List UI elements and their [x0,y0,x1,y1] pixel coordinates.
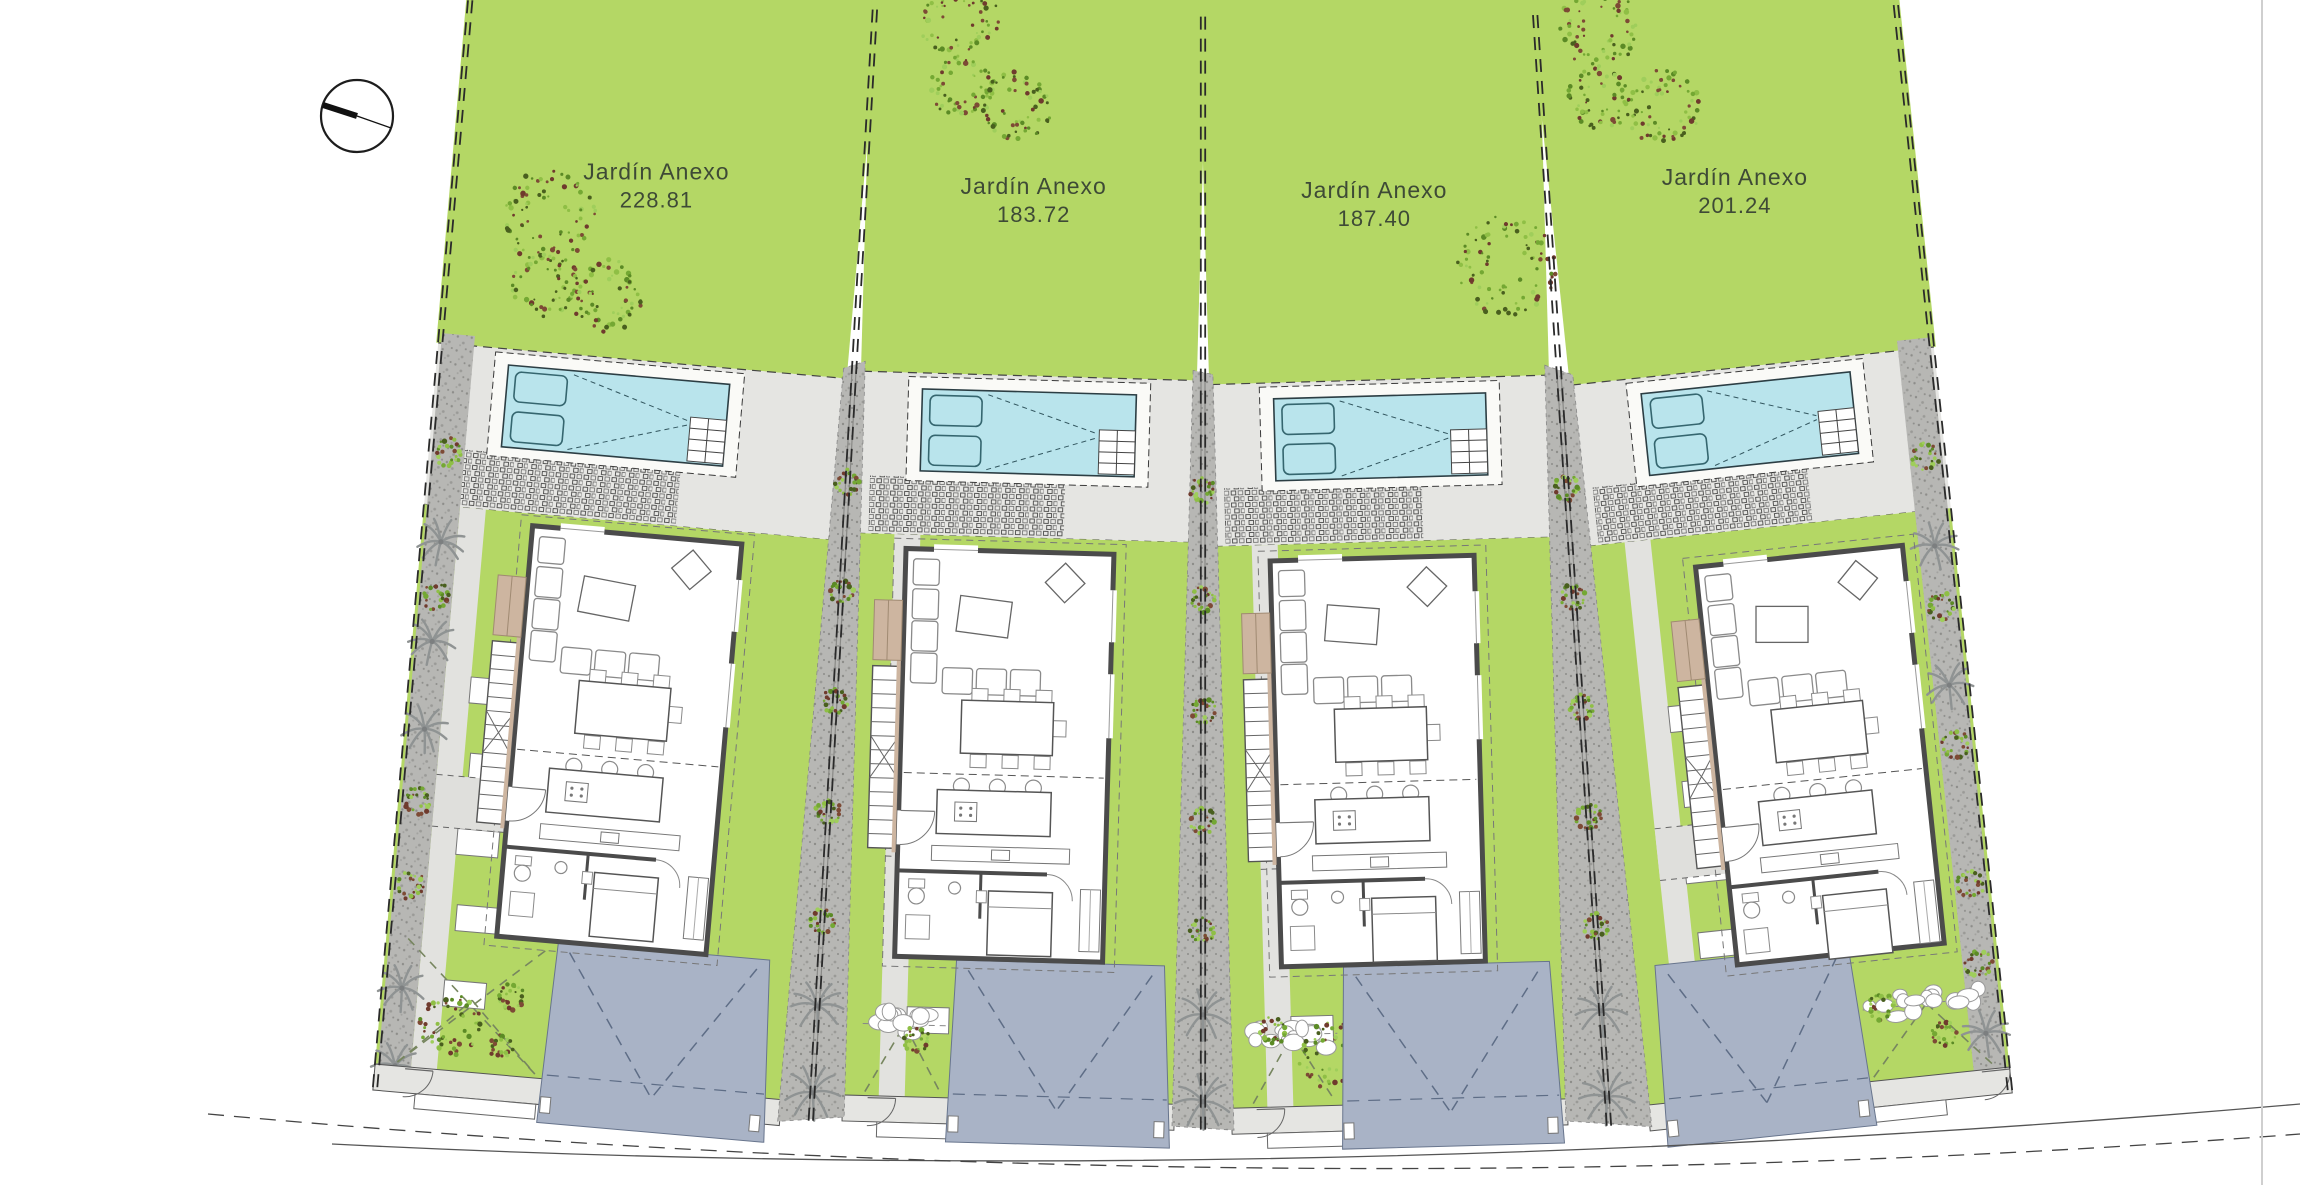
pool-steps [1818,408,1858,456]
site-plan-sheet: Jardín Anexo228.81Jardín Anexo183.72Jard… [0,0,2304,1185]
dining-set [1334,694,1441,776]
garden-area-value: 201.24 [1698,193,1771,218]
site-plan-drawing: Jardín Anexo228.81Jardín Anexo183.72Jard… [0,0,2304,1185]
garden-area-value: 183.72 [997,202,1070,227]
plot-3: Jardín Anexo187.40 [1197,0,1582,1152]
driveway [945,960,1174,1148]
house-floorplan [882,538,1126,972]
driveway [1649,944,1877,1147]
pool [1259,381,1502,492]
driveway [537,941,780,1142]
pool-steps [1098,430,1135,475]
garden-area-value: 228.81 [620,187,693,212]
plot-2: Jardín Anexo183.72 [840,0,1210,1148]
outdoor-stairs [1243,673,1276,866]
pool [906,377,1151,488]
garden-label: Jardín Anexo [1662,164,1808,190]
house-floorplan [1258,545,1498,977]
garden-label: Jardín Anexo [1301,177,1447,203]
driveway [1337,961,1564,1149]
pool-steps [687,417,727,464]
north-arrow-icon [321,80,393,152]
garden-label: Jardín Anexo [961,173,1107,199]
garden-area-value: 187.40 [1338,206,1411,231]
outdoor-stairs [868,660,901,853]
coffee-table [1756,606,1808,642]
kitchen-island [936,777,1052,836]
coffee-table [956,595,1012,638]
kitchen-island [1314,785,1430,844]
deck-pergola [1224,483,1423,545]
garden-label: Jardín Anexo [583,158,729,184]
coffee-table [1325,605,1380,645]
deck-pergola [868,475,1065,536]
pool-steps [1451,429,1488,474]
pool [487,352,745,477]
